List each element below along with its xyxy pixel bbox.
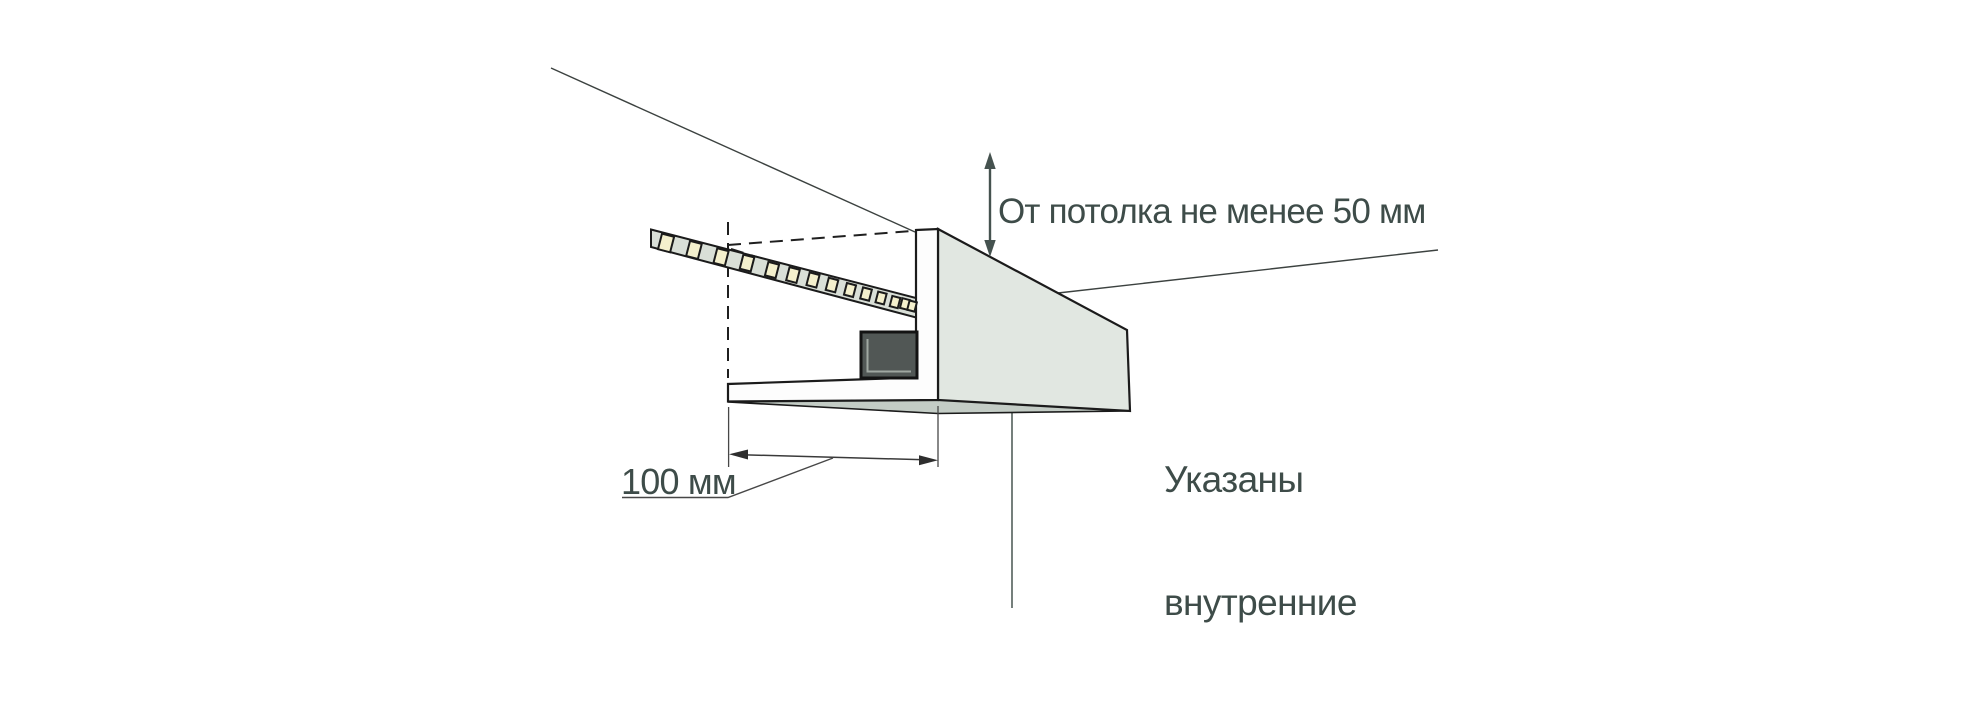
clearance-arrow-up-head — [984, 152, 995, 169]
ceiling-clearance-label: От потолка не менее 50 мм — [998, 194, 1425, 231]
led-chip — [658, 234, 674, 253]
led-chip — [875, 292, 886, 305]
ceiling-line-left — [551, 68, 915, 232]
led-chip — [714, 248, 729, 265]
depth-arrow-right-head — [919, 455, 938, 465]
ceiling-line-right — [1058, 250, 1438, 293]
led-chip — [844, 283, 856, 297]
diagram-canvas — [0, 0, 1980, 704]
niche-depth-label: 100 мм — [621, 463, 736, 501]
led-chip — [907, 301, 917, 312]
niche-note-line-1: Указаны — [1164, 459, 1397, 500]
led-chip — [806, 272, 819, 287]
led-chip — [686, 241, 702, 259]
niche-note-label: Указаны внутренние габариты ниш — [1164, 377, 1397, 704]
led-chip — [740, 255, 755, 272]
led-chip — [826, 278, 839, 293]
depth-arrow-left-head — [729, 450, 748, 460]
led-chip — [765, 262, 779, 278]
led-chip — [860, 287, 872, 300]
depth-dimension-line — [733, 455, 933, 461]
led-chip — [890, 296, 901, 308]
niche-side-face — [938, 229, 1130, 411]
led-chip-row — [658, 234, 917, 312]
niche-note-line-2: внутренние — [1164, 582, 1397, 623]
led-niche-installation-diagram: От потолка не менее 50 мм Указаны внутре… — [0, 0, 1980, 704]
led-chip — [786, 267, 800, 283]
projection-dashed-top — [728, 231, 912, 245]
